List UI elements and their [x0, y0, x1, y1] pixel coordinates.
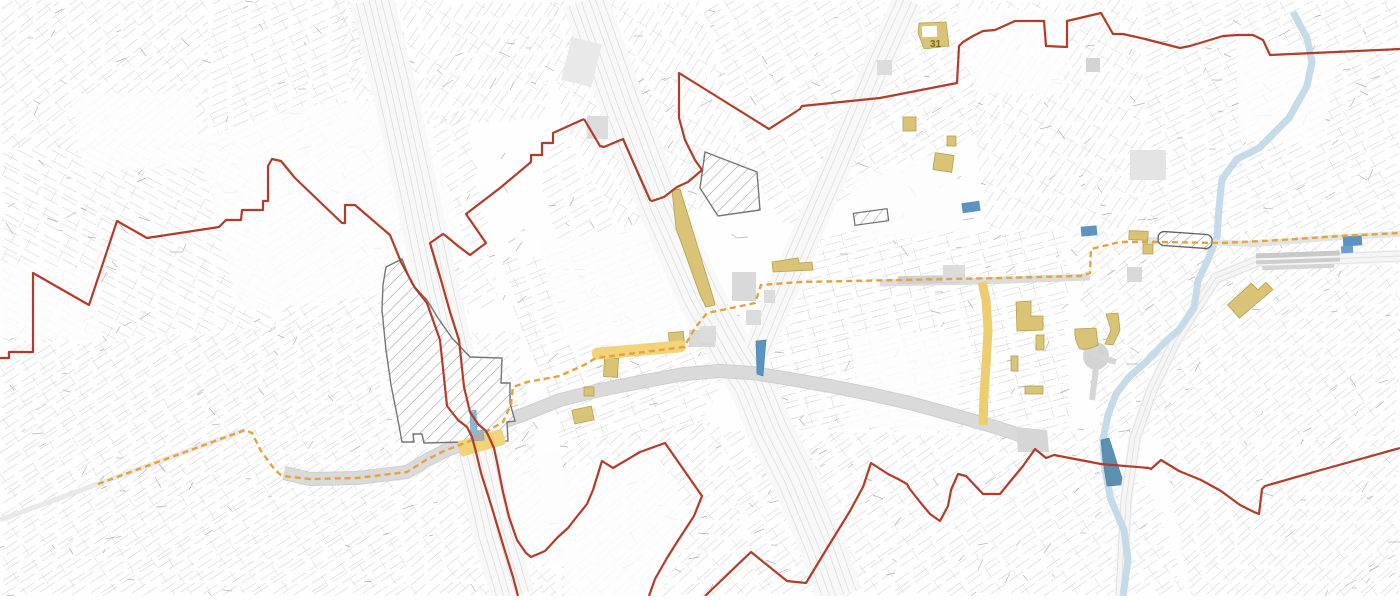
svg-text:31: 31	[930, 39, 942, 50]
